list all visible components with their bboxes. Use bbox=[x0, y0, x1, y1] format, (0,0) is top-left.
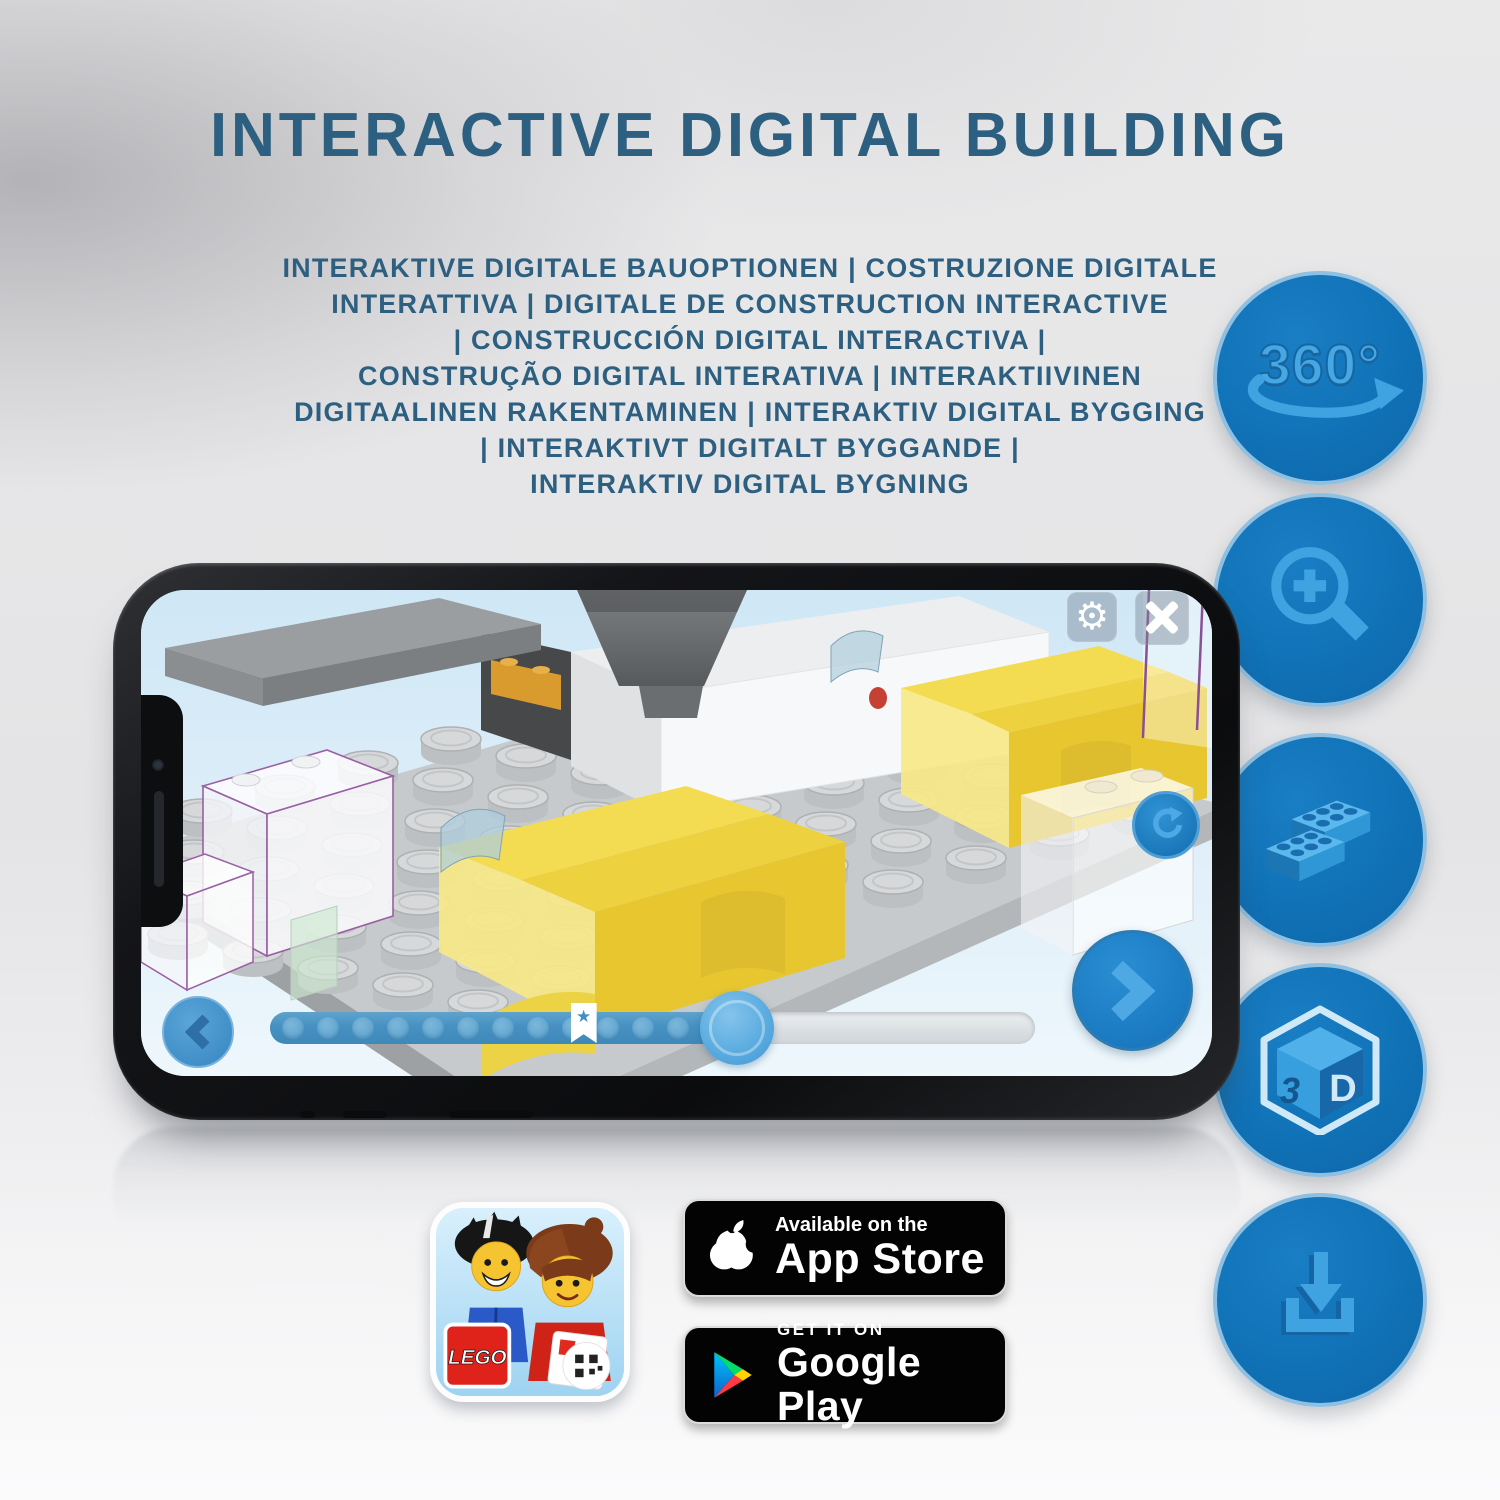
camera-icon bbox=[152, 759, 164, 771]
progress-dot bbox=[492, 1017, 514, 1039]
3d-view-icon: 3 D bbox=[1255, 1005, 1385, 1135]
phone-screen: ⚙ bbox=[141, 590, 1212, 1076]
close-icon bbox=[1135, 591, 1189, 645]
progress-dot bbox=[457, 1017, 479, 1039]
feature-3d-badge: 3 D bbox=[1213, 963, 1427, 1177]
lego-bricks-icon bbox=[1256, 784, 1384, 896]
subtitle-line: INTERAKTIV DIGITAL BYGNING bbox=[220, 466, 1280, 502]
zoom-in-icon bbox=[1259, 539, 1381, 661]
phone-reflection bbox=[113, 1127, 1240, 1257]
google-play-badge[interactable]: GET IT ON Google Play bbox=[683, 1326, 1007, 1424]
subtitle: INTERAKTIVE DIGITALE BAUOPTIONEN | COSTR… bbox=[220, 250, 1280, 502]
rotate-view-button[interactable] bbox=[1132, 791, 1200, 859]
progress-dot bbox=[387, 1017, 409, 1039]
chevron-right-icon bbox=[1109, 961, 1157, 1021]
svg-text:D: D bbox=[1329, 1068, 1356, 1110]
progress-dot bbox=[282, 1017, 304, 1039]
phone-notch bbox=[141, 695, 183, 927]
lego-3d-scene bbox=[141, 590, 1212, 1076]
app-store-badge[interactable]: Available on the App Store bbox=[683, 1199, 1007, 1297]
download-icon bbox=[1260, 1240, 1380, 1360]
app-store-name: App Store bbox=[775, 1236, 985, 1282]
slider-thumb[interactable] bbox=[700, 991, 774, 1065]
progress-dot bbox=[527, 1017, 549, 1039]
progress-dot bbox=[422, 1017, 444, 1039]
poster: INTERACTIVE DIGITAL BUILDING INTERAKTIVE… bbox=[0, 0, 1500, 1500]
settings-button[interactable]: ⚙ bbox=[1067, 592, 1117, 642]
progress-dot bbox=[352, 1017, 374, 1039]
app-store-tagline: Available on the bbox=[775, 1214, 985, 1236]
progress-dot bbox=[667, 1017, 689, 1039]
lego-app-icon[interactable]: LEGO bbox=[430, 1202, 630, 1402]
feature-brick-badge bbox=[1213, 733, 1427, 947]
progress-dot bbox=[632, 1017, 654, 1039]
progress-dot bbox=[317, 1017, 339, 1039]
lego-app-art: LEGO bbox=[436, 1208, 624, 1396]
subtitle-line: DIGITAALINEN RAKENTAMINEN | INTERAKTIV D… bbox=[220, 394, 1280, 430]
previous-step-button[interactable] bbox=[162, 996, 234, 1068]
build-progress-bar[interactable]: ★ bbox=[270, 1012, 1035, 1044]
feature-download-badge bbox=[1213, 1193, 1427, 1407]
subtitle-line: INTERATTIVA | DIGITALE DE CONSTRUCTION I… bbox=[220, 286, 1280, 322]
subtitle-line: | INTERAKTIVT DIGITALT BYGGANDE | bbox=[220, 430, 1280, 466]
progress-dot bbox=[597, 1017, 619, 1039]
rotate-icon bbox=[1147, 806, 1185, 844]
phone-mockup: ⚙ bbox=[113, 563, 1240, 1120]
next-step-button[interactable] bbox=[1072, 930, 1193, 1051]
phone-mic-hole bbox=[343, 1111, 387, 1118]
gear-icon: ⚙ bbox=[1075, 598, 1109, 636]
google-play-icon bbox=[707, 1346, 759, 1404]
phone-mic-hole bbox=[300, 1111, 315, 1118]
speaker-slot bbox=[154, 791, 164, 887]
phone-speaker-hole bbox=[449, 1111, 533, 1118]
apple-icon bbox=[707, 1218, 757, 1278]
subtitle-line: | CONSTRUCCIÓN DIGITAL INTERACTIVA | bbox=[220, 322, 1280, 358]
google-play-name: Google Play bbox=[777, 1340, 1005, 1429]
close-button[interactable] bbox=[1135, 591, 1189, 645]
svg-text:LEGO: LEGO bbox=[448, 1346, 507, 1369]
chevron-left-icon bbox=[185, 1015, 211, 1049]
feature-zoom-badge bbox=[1213, 493, 1427, 707]
subtitle-line: CONSTRUÇÃO DIGITAL INTERATIVA | INTERAKT… bbox=[220, 358, 1280, 394]
thumb-ring bbox=[709, 1000, 765, 1056]
360-arrow-icon bbox=[1236, 372, 1404, 426]
google-play-tagline: GET IT ON bbox=[777, 1321, 1005, 1340]
subtitle-line: INTERAKTIVE DIGITALE BAUOPTIONEN | COSTR… bbox=[220, 250, 1280, 286]
svg-text:3: 3 bbox=[1280, 1070, 1300, 1111]
feature-360-badge: 360° bbox=[1213, 271, 1427, 485]
page-title: INTERACTIVE DIGITAL BUILDING bbox=[15, 100, 1485, 171]
progress-fill bbox=[270, 1012, 737, 1044]
